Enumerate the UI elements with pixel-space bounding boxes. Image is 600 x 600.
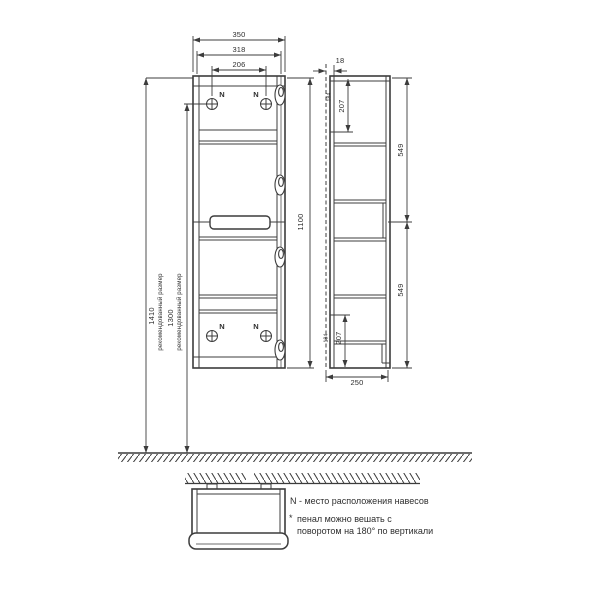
dim-label-height-hangers: 1300 bbox=[167, 309, 175, 327]
dim-label-hanger-offset-bottom: 207 bbox=[335, 331, 343, 344]
wall-hatch bbox=[185, 473, 246, 483]
floor-line bbox=[118, 453, 472, 462]
dim-caption-height-hangers: рекомендованный размер bbox=[177, 273, 184, 350]
side-view bbox=[326, 64, 390, 368]
dim-label-depth: 250 bbox=[350, 379, 363, 387]
side-view-outline bbox=[330, 76, 390, 368]
dim-label-hanger-inset-top: 184 bbox=[328, 93, 333, 102]
dim-label-door-height-bottom: 549 bbox=[397, 283, 405, 296]
hanger-mark-label: N bbox=[219, 323, 225, 331]
door-handle bbox=[210, 216, 270, 229]
drawing-linework bbox=[0, 0, 600, 600]
wall-hatch bbox=[254, 473, 420, 483]
dim-label-door-thickness: 18 bbox=[336, 57, 345, 65]
dim-label-hanger-offset-top: 207 bbox=[338, 99, 346, 112]
hanger-mark-label: N bbox=[253, 91, 259, 99]
dim-label-width-overall: 350 bbox=[232, 31, 245, 39]
dimension-1300 bbox=[184, 104, 209, 453]
hanger-mark-label: N bbox=[219, 91, 225, 99]
footnote-line-1: пенал можно вешать с bbox=[297, 514, 392, 525]
top-view bbox=[185, 473, 420, 549]
dim-label-hanger-inset-bottom: 184 bbox=[325, 334, 330, 343]
dim-label-hanger-spacing: 206 bbox=[232, 61, 245, 69]
footnote-marker: * bbox=[289, 513, 293, 524]
dim-caption-height-recommended: рекомендованный размер bbox=[158, 273, 165, 350]
hanger-mark-label: N bbox=[253, 323, 259, 331]
front-view bbox=[193, 76, 285, 368]
dim-label-door-height-top: 549 bbox=[397, 143, 405, 156]
top-view-door bbox=[189, 533, 288, 549]
dimension-1410 bbox=[146, 78, 193, 453]
dim-label-width-inner: 318 bbox=[232, 46, 245, 54]
technical-drawing-cabinet: 350 318 206 1410 рекомендованный размер … bbox=[0, 0, 600, 600]
dim-label-cabinet-height: 1100 bbox=[297, 214, 305, 231]
note-hanger-location: N - место расположения навесов bbox=[290, 496, 429, 507]
footnote-line-2: поворотом на 180° по вертикали bbox=[297, 526, 433, 537]
dimension-18 bbox=[313, 65, 347, 76]
top-view-body bbox=[192, 489, 285, 539]
dim-label-height-recommended: 1410 bbox=[148, 307, 156, 325]
